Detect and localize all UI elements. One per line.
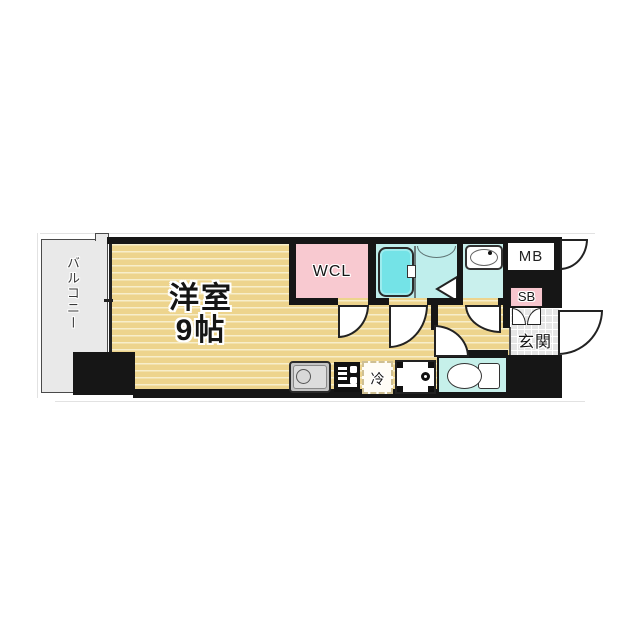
stove-grill-3 (338, 377, 347, 380)
wall-wcl-left (289, 244, 296, 305)
main-room-size: 9帖 (139, 315, 263, 347)
wall-top (107, 237, 562, 244)
stove-burner-2 (350, 377, 357, 384)
refrigerator-label: 冷 (362, 369, 393, 389)
faint-line (37, 233, 38, 398)
main-room-label: 洋室 (139, 283, 263, 315)
faint-line (55, 401, 585, 402)
wcl-label: WCL (296, 263, 368, 281)
faint-line (40, 233, 595, 234)
pillar-bottom-left (73, 352, 135, 395)
stove-grill-4 (338, 384, 357, 387)
bath-door-handle (407, 265, 416, 278)
floor-plan: バルコニー 洋室 9帖 WCL MB SB 玄関 (0, 0, 640, 640)
wall-genkan-left-stub (503, 308, 510, 328)
kitchen-sink-drain (296, 369, 311, 384)
wall-hall-2 (368, 298, 389, 305)
washer-pan-corner-br (428, 386, 434, 392)
entrance-door-swing (558, 310, 603, 355)
toilet-bowl (447, 363, 482, 389)
wall-hall-1 (289, 298, 338, 305)
shoe-box-label: SB (510, 289, 543, 304)
wall-bottom-right-block (503, 355, 562, 398)
wall-hall-3 (427, 298, 463, 305)
stove-grill-1 (338, 367, 347, 370)
window (109, 244, 112, 352)
genkan-label: 玄関 (510, 328, 560, 352)
stove-grill-2 (338, 372, 347, 375)
window-tick (104, 299, 113, 302)
balcony-label: バルコニー (66, 256, 82, 351)
wall-wcl-bath (368, 244, 376, 305)
washbasin-bowl (470, 249, 498, 266)
washer-pan-corner-tr (428, 362, 434, 368)
washbasin-faucet (488, 251, 492, 255)
washer-pan-corner-bl (397, 386, 403, 392)
mb-door-swing (560, 239, 588, 270)
stove-burner-1 (350, 366, 357, 373)
meter-box-label: MB (508, 248, 554, 265)
washer-pan-corner-tl (397, 362, 403, 368)
washer-drain-dot (424, 375, 427, 378)
